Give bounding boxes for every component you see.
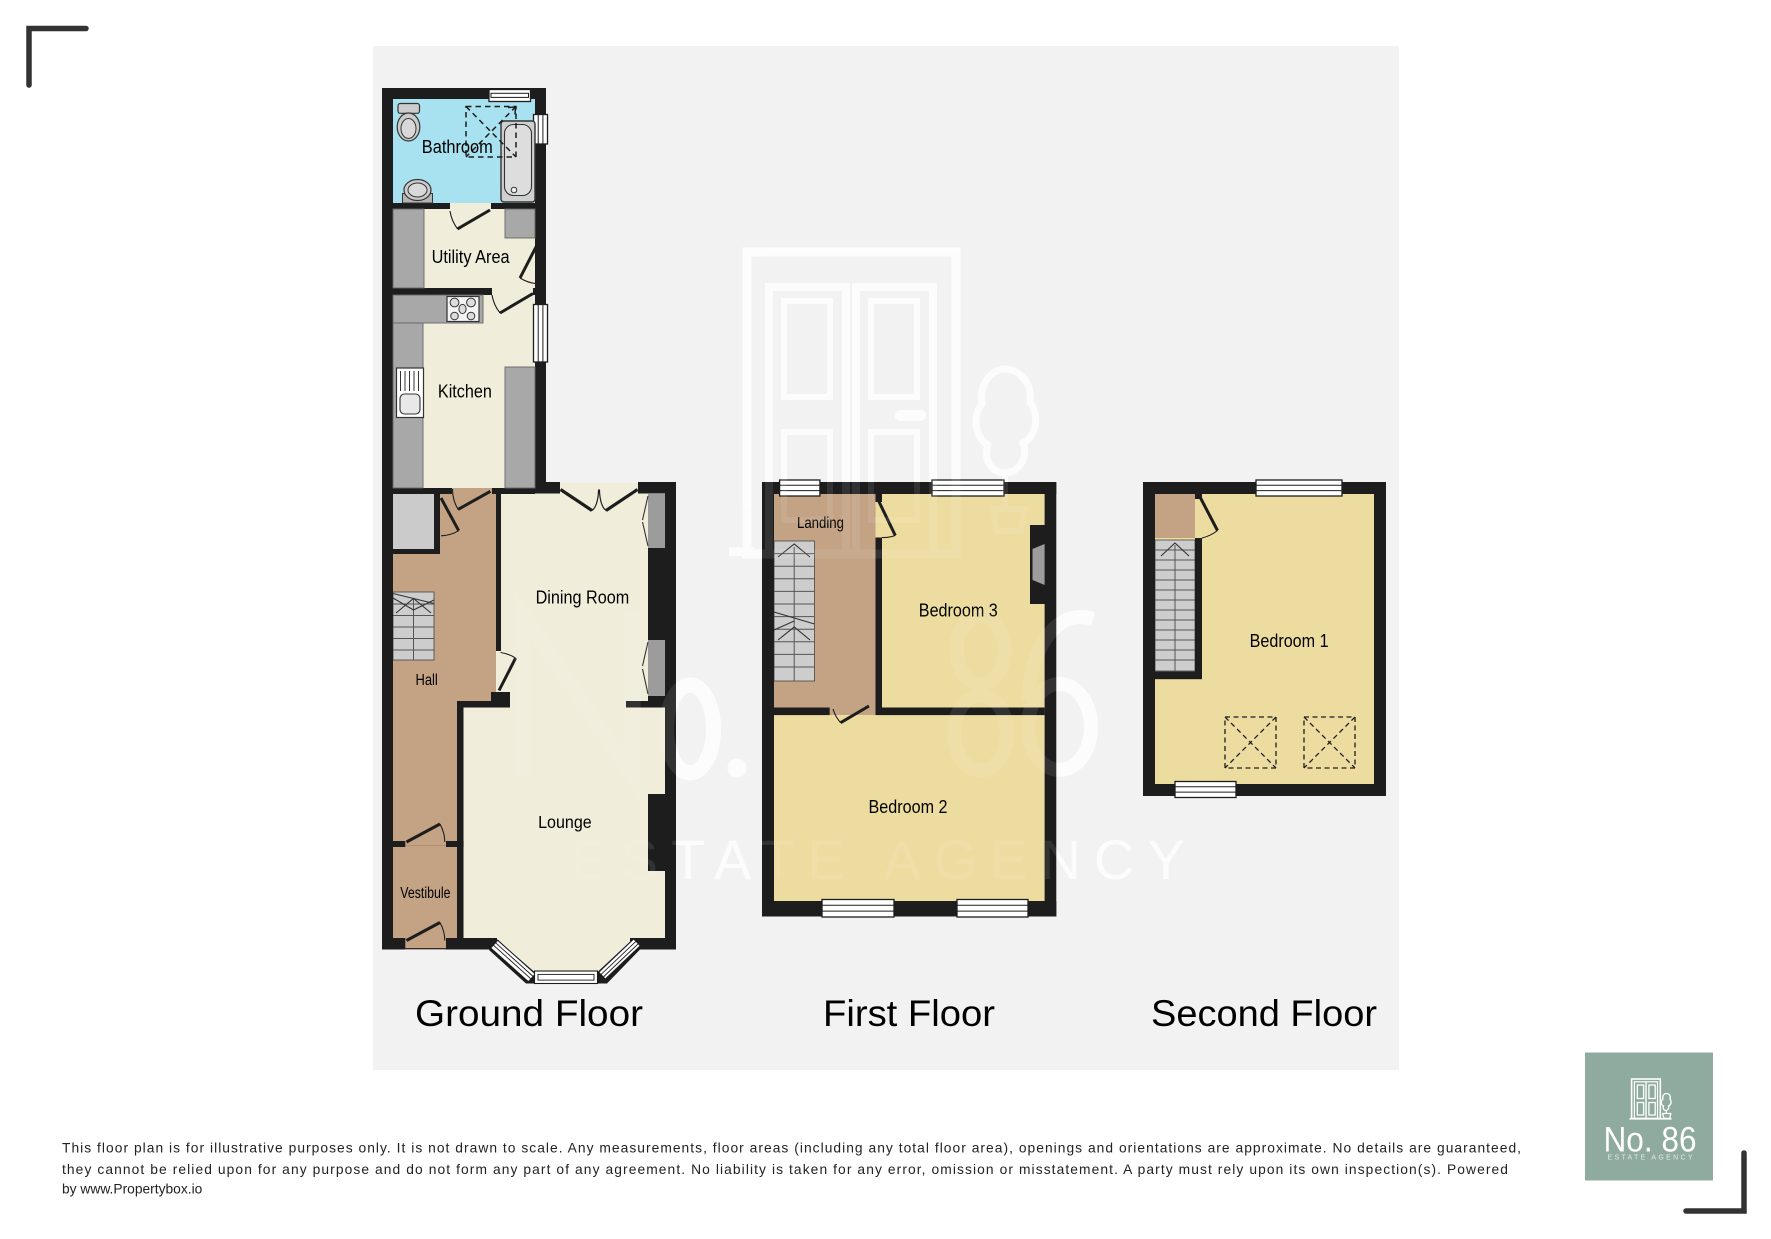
svg-text:Second Floor: Second Floor (1151, 993, 1377, 1034)
svg-text:Ground Floor: Ground Floor (415, 993, 643, 1034)
svg-text:This floor plan is for illustr: This floor plan is for illustrative purp… (62, 1141, 1521, 1156)
svg-text:Bedroom 2: Bedroom 2 (869, 797, 948, 817)
svg-text:they cannot be relied upon for: they cannot be relied upon for any purpo… (62, 1162, 1508, 1177)
svg-text:Vestibule: Vestibule (400, 885, 450, 902)
svg-text:Utility Area: Utility Area (432, 247, 511, 267)
svg-text:Bathroom: Bathroom (422, 137, 493, 157)
svg-text:Dining Room: Dining Room (536, 588, 630, 608)
svg-text:Bedroom 1: Bedroom 1 (1250, 631, 1329, 651)
svg-text:First Floor: First Floor (823, 993, 995, 1034)
svg-text:Hall: Hall (416, 672, 438, 689)
svg-text:Kitchen: Kitchen (438, 381, 492, 401)
svg-text:by www.Propertybox.io: by www.Propertybox.io (62, 1182, 203, 1197)
